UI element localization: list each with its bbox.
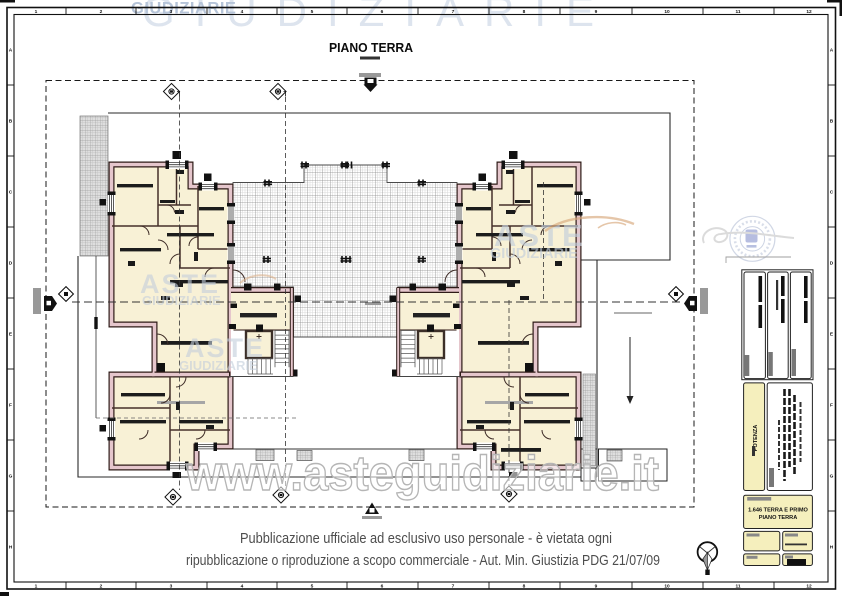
svg-text:12: 12 [806,584,812,590]
svg-text:B: B [9,119,13,125]
svg-text:11: 11 [735,9,740,15]
svg-text:GIUDIZIARIE: GIUDIZIARIE [179,358,258,373]
svg-text:PIANO TERRA: PIANO TERRA [759,515,798,521]
svg-text:11: 11 [735,584,740,590]
svg-text:7: 7 [452,9,455,15]
svg-text:Pubblicazione ufficiale ad esc: Pubblicazione ufficiale ad esclusivo uso… [240,530,612,547]
svg-text:H: H [830,545,834,551]
svg-text:C: C [9,190,13,196]
svg-text:A: A [9,48,13,54]
svg-text:A: A [830,48,834,54]
svg-text:G: G [830,474,834,480]
svg-text:C: C [830,190,834,196]
svg-text:2: 2 [100,584,103,590]
svg-text:1.646 TERRA E PRIMO: 1.646 TERRA E PRIMO [748,508,808,514]
svg-text:12: 12 [806,9,812,15]
svg-text:9: 9 [595,9,598,15]
svg-text:F: F [830,403,833,409]
svg-text:1: 1 [35,584,38,590]
svg-text:1: 1 [35,9,38,15]
svg-text:PIANO TERRA: PIANO TERRA [329,40,414,55]
svg-text:GIUDIZIARIE: GIUDIZIARIE [490,246,578,262]
svg-text:4: 4 [241,584,244,590]
svg-text:www.asteguidiziarie.it: www.asteguidiziarie.it [185,447,659,501]
svg-text:D: D [830,261,834,267]
svg-text:GIUDIZIARIE: GIUDIZIARIE [142,293,221,308]
svg-text:3: 3 [170,584,173,590]
svg-text:H: H [9,545,13,551]
svg-text:6: 6 [381,584,384,590]
svg-text:2: 2 [100,9,103,15]
svg-text:ripubblicazione o riproduzione: ripubblicazione o riproduzione a scopo c… [186,552,660,569]
svg-text:9: 9 [595,584,598,590]
svg-text:8: 8 [523,9,526,15]
svg-text:6: 6 [381,9,384,15]
svg-text:10: 10 [664,584,670,590]
svg-text:B: B [830,119,834,125]
svg-text:5: 5 [311,584,314,590]
svg-text:F: F [9,403,12,409]
svg-text:4: 4 [241,9,244,15]
svg-text:D: D [9,261,13,267]
svg-text:8: 8 [523,584,526,590]
svg-text:G: G [9,474,13,480]
svg-text:3: 3 [170,9,173,15]
svg-text:5: 5 [311,9,314,15]
svg-text:10: 10 [664,9,670,15]
svg-text:7: 7 [452,584,455,590]
